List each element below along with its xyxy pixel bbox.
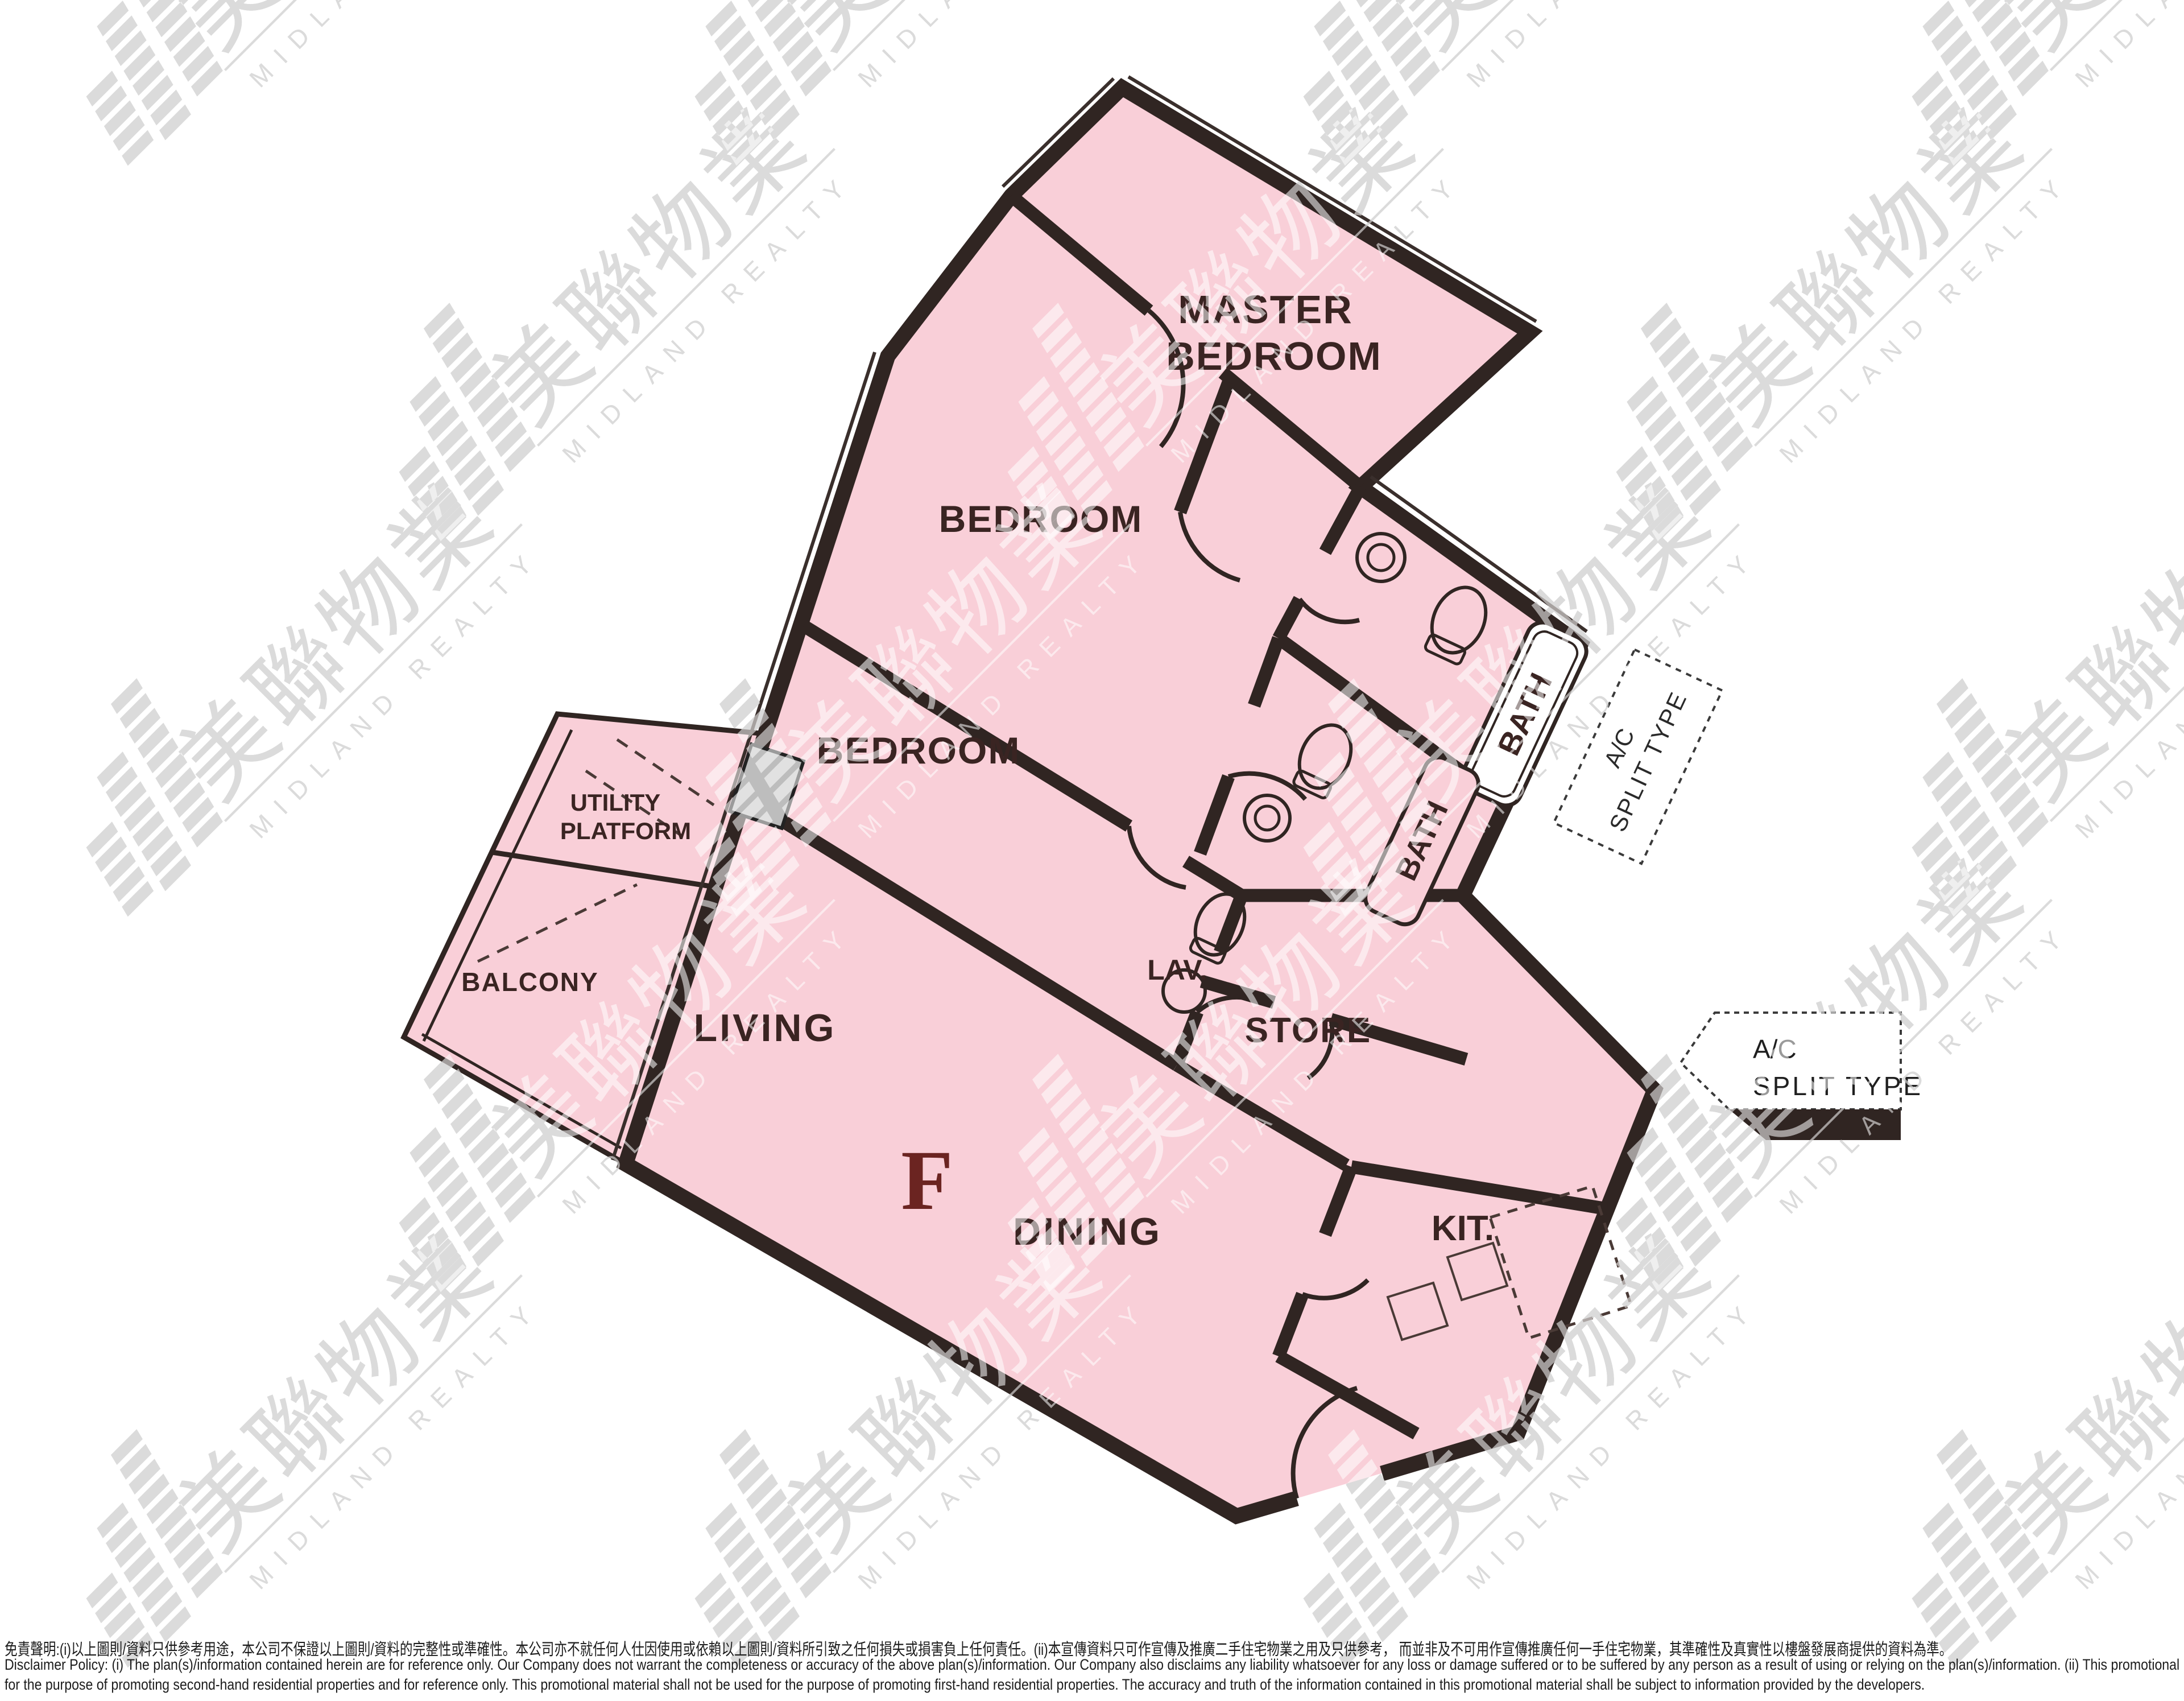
midland-logo-watermark-icon: 美聯物業MIDLAND REALTY bbox=[2150, 33, 2184, 574]
disclaimer-english-line1: Disclaimer Policy: (i) The plan(s)/infor… bbox=[5, 1656, 2184, 1674]
midland-logo-watermark-icon: 美聯物業MIDLAND REALTY bbox=[2150, 784, 2184, 1325]
floor-plan-image: 美聯物業MIDLAND REALTY美聯物業MIDLAND REALTY美聯物業… bbox=[0, 0, 2184, 1701]
midland-logo-watermark-icon: 美聯物業MIDLAND REALTY bbox=[1837, 408, 2184, 949]
midland-logo-watermark-icon: 美聯物業MIDLAND REALTY bbox=[1837, 1159, 2184, 1700]
floor-plan-svg: 美聯物業MIDLAND REALTY美聯物業MIDLAND REALTY美聯物業… bbox=[0, 0, 2184, 1701]
unit-letter: F bbox=[901, 1133, 953, 1228]
utility-platform-label-line2: PLATFORM bbox=[560, 818, 691, 844]
kitchen-label: KIT. bbox=[1432, 1209, 1494, 1248]
utility-platform-label-line1: UTILITY bbox=[570, 789, 661, 816]
svg-text:MIDLAND REALTY: MIDLAND REALTY bbox=[853, 0, 1155, 93]
midland-logo-watermark-icon: 美聯物業MIDLAND REALTY bbox=[2150, 33, 2184, 574]
disclaimer-english-line2: for the purpose of promoting second-hand… bbox=[5, 1676, 1925, 1694]
midland-logo-watermark-icon: 美聯物業MIDLAND REALTY bbox=[11, 0, 552, 199]
lav-label: LAV. bbox=[1147, 954, 1207, 986]
midland-logo-watermark-icon: 美聯物業MIDLAND REALTY bbox=[2150, 784, 2184, 1325]
svg-text:MIDLAND REALTY: MIDLAND REALTY bbox=[245, 0, 547, 93]
balcony-label: BALCONY bbox=[461, 967, 598, 997]
svg-text:MIDLAND REALTY: MIDLAND REALTY bbox=[1462, 0, 1764, 93]
